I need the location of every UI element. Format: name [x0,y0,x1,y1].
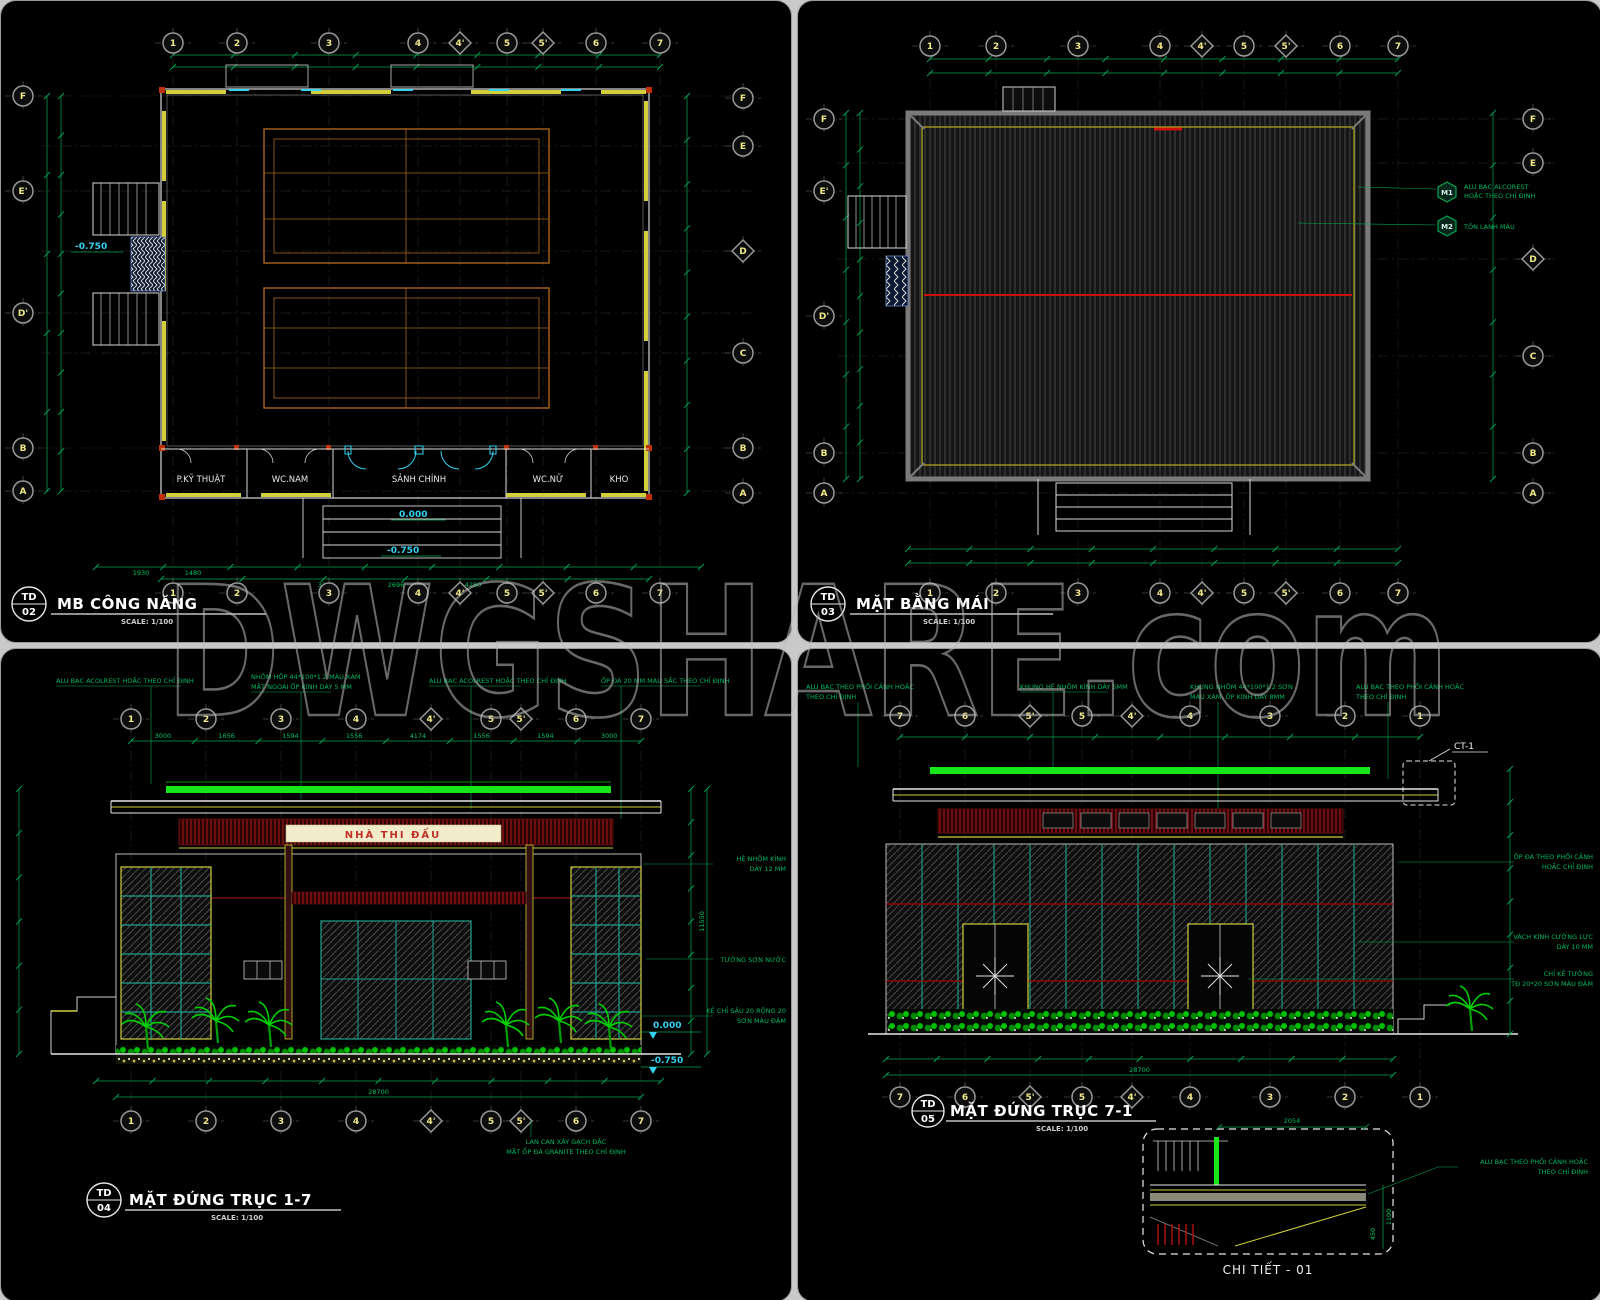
svg-text:5': 5' [1281,589,1290,599]
note-text: DÀY 12 MM [750,864,786,873]
note-text: THEO CHỈ ĐỊNH [805,692,856,701]
svg-text:1656: 1656 [218,732,235,740]
drawing-scale: SCALE: 1/100 [1036,1125,1088,1133]
dimension-chain [688,786,694,1057]
dim-text: 1480 [185,569,202,577]
svg-text:4: 4 [1187,1093,1193,1103]
svg-text:F: F [20,92,26,102]
note-text: SƠN MÀU ĐẬM [737,1016,786,1025]
note-text: HOẶC CHỈ ĐỊNH [1542,862,1593,871]
dimension-chain [93,1078,664,1084]
titleblock: TD 04 MẶT ĐỨNG TRỤC 1-7 SCALE: 1/100 [87,1183,341,1222]
dimension-chain [16,786,22,1057]
svg-text:4: 4 [1187,712,1193,722]
sheet-number: 03 [821,607,835,618]
svg-text:2: 2 [234,39,240,49]
left-stairs [93,183,165,345]
svg-text:5': 5' [538,39,547,49]
svg-text:E': E' [820,187,829,197]
drawing-scale: SCALE: 1/100 [121,618,173,626]
svg-text:D': D' [819,312,829,322]
note-text: VÁCH KÍNH CƯỜNG LỰC [1513,932,1593,941]
svg-text:6: 6 [593,589,599,599]
sport-courts [264,129,549,408]
dimension-chain: 28700 [113,1088,644,1100]
detail-01: 2054 1100 450 ALU BẠC THEO PHỐI CẢNH HOẶ… [1143,1117,1588,1277]
grid-bubble-col-right: FEDCBA [1515,104,1551,508]
sheet-code: TD [96,1188,111,1199]
dimension-chain [857,110,863,482]
note-text: ỐP ĐÁ THEO PHỐI CẢNH [1514,851,1593,861]
svg-text:7: 7 [638,1117,644,1127]
svg-text:6: 6 [962,712,968,722]
svg-text:11550: 11550 [698,911,706,932]
material-notes-top: ALU BẠC ACOLREST HOẶC THEO CHỈ ĐỊNH NHÔM… [56,672,730,819]
room-label: KHO [610,475,629,485]
grid-bubble-row-top: 12344'55'67 [912,31,1416,61]
svg-text:4: 4 [353,715,359,725]
note-text: ALU BẠC THEO PHỐI CẢNH HOẶC [1356,681,1464,691]
svg-text:4174: 4174 [410,732,427,740]
svg-text:C: C [1530,352,1537,362]
svg-text:2: 2 [234,589,240,599]
svg-text:1: 1 [170,39,176,49]
note-text: KHUNG NHÔM 44*100*1.2 SƠN [1190,682,1293,691]
dim-text: 2054 [1284,1117,1301,1125]
svg-text:5': 5' [538,589,547,599]
svg-text:B: B [1530,449,1537,459]
level-text: -0.750 [387,546,419,556]
svg-text:1556: 1556 [473,732,490,740]
level-marks: 0.000 -0.750 [641,1021,701,1074]
note-text: THEO CHỈ ĐỊNH [1537,1167,1588,1176]
svg-text:2: 2 [203,715,209,725]
svg-text:E: E [1530,159,1536,169]
svg-text:A: A [20,487,27,497]
svg-text:5: 5 [1241,589,1247,599]
grid-bubble-row-top: 765'54'4321 [882,701,1438,731]
dimension-chain [684,93,690,496]
svg-text:4: 4 [353,1117,359,1127]
svg-text:7: 7 [1395,589,1401,599]
room-label: WC.NỮ [533,473,564,485]
svg-text:A: A [1530,489,1537,499]
dimension-chain [843,110,849,482]
dimension-chain: 11550 [698,786,710,1057]
svg-text:4': 4' [426,715,435,725]
note-text: MẶT NGOÀI ỐP KÍNH DÀY 5 MM [251,681,352,691]
svg-text:1: 1 [128,715,134,725]
svg-text:5': 5' [516,1117,525,1127]
svg-text:4: 4 [415,589,421,599]
svg-text:2: 2 [1342,712,1348,722]
svg-text:3000: 3000 [601,732,618,740]
svg-text:7: 7 [657,589,663,599]
svg-text:6: 6 [1337,589,1343,599]
drawing-scale: SCALE: 1/100 [211,1214,263,1222]
svg-text:7: 7 [897,712,903,722]
svg-text:3: 3 [326,589,332,599]
detail-title: CHI TIẾT - 01 [1223,1261,1314,1277]
svg-text:5: 5 [488,715,494,725]
svg-text:4': 4' [426,1117,435,1127]
note-text: MÀU XÁM, ỐP KÍNH DÀY 8MM [1190,691,1285,701]
svg-text:5: 5 [504,589,510,599]
svg-text:5': 5' [1025,712,1034,722]
svg-text:6: 6 [593,39,599,49]
svg-text:4: 4 [1157,589,1163,599]
note-text: NHÔM HỘP 44*100*1.2 MÀU XÁM [251,672,361,681]
ct1-detail-box [1403,761,1455,805]
dim-text: 1930 [133,569,150,577]
grid-bubble-row-bottom: 12344'55'67 [113,1106,659,1136]
front-elevation-viewport: ALU BẠC ACOLREST HOẶC THEO CHỈ ĐỊNH NHÔM… [0,648,792,1300]
svg-text:4': 4' [455,589,464,599]
elevation-body: NHÀ THI ĐẤU [51,782,681,1064]
svg-text:3: 3 [326,39,332,49]
dimension-chain [883,1056,1396,1062]
svg-text:2: 2 [1342,1093,1348,1103]
note-text: ALU BẠC ACOLREST HOẶC THEO CHỈ ĐỊNH [56,676,194,685]
svg-text:4': 4' [455,39,464,49]
svg-text:D': D' [18,309,28,319]
rear-elevation-drawing: ALU BẠC THEO PHỐI CẢNH HOẶC THEO CHỈ ĐỊN… [798,649,1600,1300]
svg-text:A: A [740,489,747,499]
level-text: -0.750 [75,242,107,252]
elevation-body: CT-1 [868,742,1518,1034]
svg-text:3: 3 [278,715,284,725]
dim-text: 450 [1369,1228,1377,1240]
shrub-row [116,1045,641,1054]
dimension-chain [927,70,1401,76]
svg-text:2: 2 [993,589,999,599]
svg-text:5: 5 [1241,42,1247,52]
svg-text:4': 4' [1197,42,1206,52]
grid-bubble-row-top: 12344'55'67 [113,704,659,734]
svg-text:3: 3 [1075,589,1081,599]
grid-bubble-col-right: FEDCBA [725,83,761,508]
dim-text: 1100 [1385,1209,1393,1226]
level-text: -0.750 [651,1056,683,1066]
svg-text:1: 1 [1417,1093,1423,1103]
svg-text:F: F [740,94,746,104]
svg-text:3: 3 [1267,712,1273,722]
svg-text:2: 2 [993,42,999,52]
svg-text:3: 3 [1267,1093,1273,1103]
svg-text:1594: 1594 [537,732,554,740]
svg-text:4': 4' [1197,589,1206,599]
sheet-code: TD [21,592,36,603]
note-text: LAN CAN XÂY GẠCH ĐẶC [526,1137,607,1146]
svg-text:2: 2 [203,1117,209,1127]
cad-sheet: P.KỸ THUẬT WC.NAM SẢNH CHÍNH WC.NỮ KHO 0… [0,0,1600,1300]
drawing-title: MẶT ĐỨNG TRỤC 7-1 [950,1100,1133,1120]
svg-text:5': 5' [516,715,525,725]
lit-band [930,767,1370,774]
note-text: KẺ CHỈ SÂU 20 RỘNG 20 [706,1006,786,1015]
svg-text:28700: 28700 [1129,1066,1150,1074]
material-tag: M1 [1441,189,1453,197]
grid-bubble-col-left: FE'D'BA [806,104,842,508]
note-text: ALU BẠC ACOLREST HOẶC THEO CHỈ ĐỊNH [429,676,567,685]
bottom-stairs [1038,479,1250,535]
svg-text:E': E' [19,187,28,197]
svg-text:7: 7 [1395,42,1401,52]
level-text: 0.000 [399,510,427,520]
svg-text:4': 4' [1127,712,1136,722]
svg-text:1: 1 [927,42,933,52]
material-note: HOẶC THEO CHỈ ĐỊNH [1464,191,1535,200]
drawing-title: MẶT ĐỨNG TRỤC 1-7 [129,1189,312,1209]
note-text: THEO CHỈ ĐỊNH [1355,692,1406,701]
svg-text:4: 4 [1157,42,1163,52]
dimension-chain: 30001656159415564174155615943000 [128,732,644,744]
dimension-chain [905,560,1401,566]
svg-text:4: 4 [415,39,421,49]
svg-text:E: E [740,142,746,152]
svg-text:3: 3 [1075,42,1081,52]
svg-text:F: F [1530,115,1536,125]
floor-plan-viewport: P.KỸ THUẬT WC.NAM SẢNH CHÍNH WC.NỮ KHO 0… [0,0,792,643]
level-text: 0.000 [653,1021,681,1031]
building-walls [159,65,652,500]
svg-text:7: 7 [638,715,644,725]
svg-text:5': 5' [1281,42,1290,52]
grid-bubble-col-left: FE'D'BA [5,81,41,506]
material-notes-top: ALU BẠC THEO PHỐI CẢNH HOẶC THEO CHỈ ĐỊN… [805,681,1464,809]
note-text: TƯỜNG SƠN NƯỚC [720,955,787,964]
grid-bubble-row-bottom: 12344'55'67 [155,578,678,608]
drawing-title: MẶT BẰNG MÁI [856,592,989,613]
note-text: ALU BẠC THEO PHỐI CẢNH HOẶC [1480,1156,1588,1166]
material-note: TÔN LẠNH MÀU [1463,222,1515,231]
svg-text:1: 1 [1417,712,1423,722]
dim-text: 4280 [465,581,482,589]
svg-text:7: 7 [657,39,663,49]
entrance-header [292,892,526,904]
dimension-chain [158,576,652,582]
dimension-chain [44,93,50,494]
svg-text:6: 6 [1337,42,1343,52]
svg-text:3000: 3000 [155,732,172,740]
vent-row [1043,813,1301,828]
dimension-chain [1507,766,1513,1037]
dimension-chain [927,56,1401,62]
dimension-chain [897,734,1423,740]
note-text: HỆ NHÔM KÍNH [736,854,786,863]
svg-text:B: B [821,449,828,459]
svg-text:F: F [821,115,827,125]
level-marks: 0.000 -0.750 -0.750 [71,242,446,556]
material-note: ALU BẠC ALCOREST [1464,183,1529,191]
material-notes-right: HỆ NHÔM KÍNH DÀY 12 MM TƯỜNG SƠN NƯỚC KẺ… [641,854,786,1025]
sheet-code: TD [920,1099,935,1110]
svg-text:5: 5 [1079,712,1085,722]
floor-plan-drawing: P.KỸ THUẬT WC.NAM SẢNH CHÍNH WC.NỮ KHO 0… [1,1,791,642]
note-text: MẶT ỐP ĐÁ GRANITE THEO CHỈ ĐỊNH [506,1146,626,1156]
roof-plan-viewport: M1 ALU BẠC ALCOREST HOẶC THEO CHỈ ĐỊNH M… [797,0,1600,643]
left-stairs [848,196,908,306]
svg-text:6: 6 [573,715,579,725]
room-label: SẢNH CHÍNH [392,473,446,485]
sheet-number: 04 [97,1203,111,1214]
svg-text:6: 6 [573,1117,579,1127]
svg-text:B: B [20,444,27,454]
drawing-title: MB CÔNG NĂNG [57,594,197,613]
svg-text:28700: 28700 [368,1088,389,1096]
room-label: WC.NAM [272,475,309,485]
svg-text:D: D [1529,255,1536,265]
sheet-number: 05 [921,1114,935,1125]
grid-bubble-row-top: 12344'55'67 [155,28,678,58]
svg-text:1556: 1556 [346,732,363,740]
drawing-scale: SCALE: 1/100 [923,618,975,626]
shrub-row [888,1009,1393,1034]
sheet-number: 02 [22,607,36,618]
room-band: P.KỸ THUẬT WC.NAM SẢNH CHÍNH WC.NỮ KHO [161,446,649,498]
note-text: ALU BẠC THEO PHỐI CẢNH HOẶC [806,681,914,691]
roof [908,87,1368,479]
material-tag: M2 [1441,223,1453,231]
svg-text:5: 5 [488,1117,494,1127]
note-text: CHỈ KẺ TƯỜNG [1544,969,1593,978]
dim-text: 2696 [388,581,405,589]
svg-text:A: A [821,489,828,499]
sheet-code: TD [820,592,835,603]
svg-text:D: D [739,247,746,257]
note-text: TĐ 20*20 SƠN MÀU ĐẬM [1510,979,1593,988]
svg-text:B: B [740,444,747,454]
rear-elevation-viewport: ALU BẠC THEO PHỐI CẢNH HOẶC THEO CHỈ ĐỊN… [797,648,1600,1300]
room-label: P.KỸ THUẬT [177,473,227,485]
lit-band [166,786,611,793]
svg-text:3: 3 [278,1117,284,1127]
note-text: ỐP ĐÁ 20 MM MÀU SẮC THEO CHỈ ĐỊNH [601,675,730,685]
roof-vent [1003,87,1055,111]
svg-text:C: C [740,349,747,359]
dimension-chain [58,93,64,494]
svg-text:1: 1 [128,1117,134,1127]
gravel-strip [116,1055,641,1064]
callout-text: CT-1 [1454,742,1474,752]
dimension-chain [1490,110,1496,482]
note-text: DÀY 10 MM [1557,942,1593,951]
dimension-chain [905,546,1401,552]
dimension-chain: 28700 [883,1066,1396,1078]
roof-plan-drawing: M1 ALU BẠC ALCOREST HOẶC THEO CHỈ ĐỊNH M… [798,1,1600,642]
note-text: KHUNG HỆ NHÔM KÍNH DÀY 5MM [1020,682,1128,691]
front-elevation-drawing: ALU BẠC ACOLREST HOẶC THEO CHỈ ĐỊNH NHÔM… [1,649,791,1300]
svg-text:5: 5 [504,39,510,49]
svg-text:1594: 1594 [282,732,299,740]
svg-text:7: 7 [897,1093,903,1103]
